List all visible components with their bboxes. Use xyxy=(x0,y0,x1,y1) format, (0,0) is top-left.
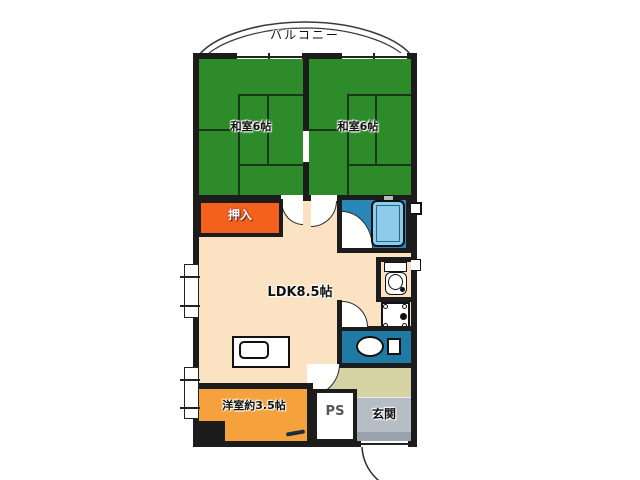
ldk-label: LDK8.5帖 xyxy=(240,286,360,300)
pan-corner xyxy=(383,304,388,309)
window-icon xyxy=(184,264,199,318)
washbasin-icon xyxy=(356,336,384,357)
washitsu-left-label: 和室6帖 xyxy=(211,121,291,133)
tatami-line xyxy=(238,94,303,96)
tatami-line xyxy=(347,94,411,96)
sliding-door-opening xyxy=(303,130,309,163)
tatami-line xyxy=(347,164,411,166)
tatami-line xyxy=(347,94,349,195)
genkan-step xyxy=(357,432,411,441)
wall xyxy=(193,421,225,447)
pan-drain xyxy=(400,313,407,320)
youshitsu-label: 洋室約3.5帖 xyxy=(203,400,305,412)
oshiire-label: 押入 xyxy=(205,209,275,222)
window-tick xyxy=(180,379,200,381)
genkan-label: 玄関 xyxy=(357,408,411,421)
wall xyxy=(303,59,309,195)
bath-vent-icon xyxy=(411,202,422,215)
window-tick xyxy=(180,407,200,409)
floorplan-canvas: バルコニー 押入 xyxy=(0,0,640,480)
window-icon xyxy=(184,367,199,419)
tatami-line xyxy=(238,164,303,166)
window-tick xyxy=(180,276,200,278)
window-divider xyxy=(373,53,375,59)
wall xyxy=(376,257,381,302)
entrance-door-arc xyxy=(352,447,420,480)
ps-label: PS xyxy=(313,405,357,419)
washitsu-right-label: 和室6帖 xyxy=(318,121,398,133)
pan-corner xyxy=(402,304,407,309)
toilet-vent-icon xyxy=(411,259,421,271)
entrance-line xyxy=(361,443,408,445)
toilet-dot xyxy=(400,287,405,292)
window-tick xyxy=(180,305,200,307)
balcony-label: バルコニー xyxy=(255,29,355,42)
tatami-line xyxy=(238,94,240,195)
toilet-tank-icon xyxy=(384,262,407,272)
bathtub-icon xyxy=(371,200,405,247)
window-divider xyxy=(268,53,270,59)
washstand-icon xyxy=(387,338,401,355)
wall xyxy=(303,195,311,201)
kitchen-sink-icon xyxy=(239,341,269,359)
